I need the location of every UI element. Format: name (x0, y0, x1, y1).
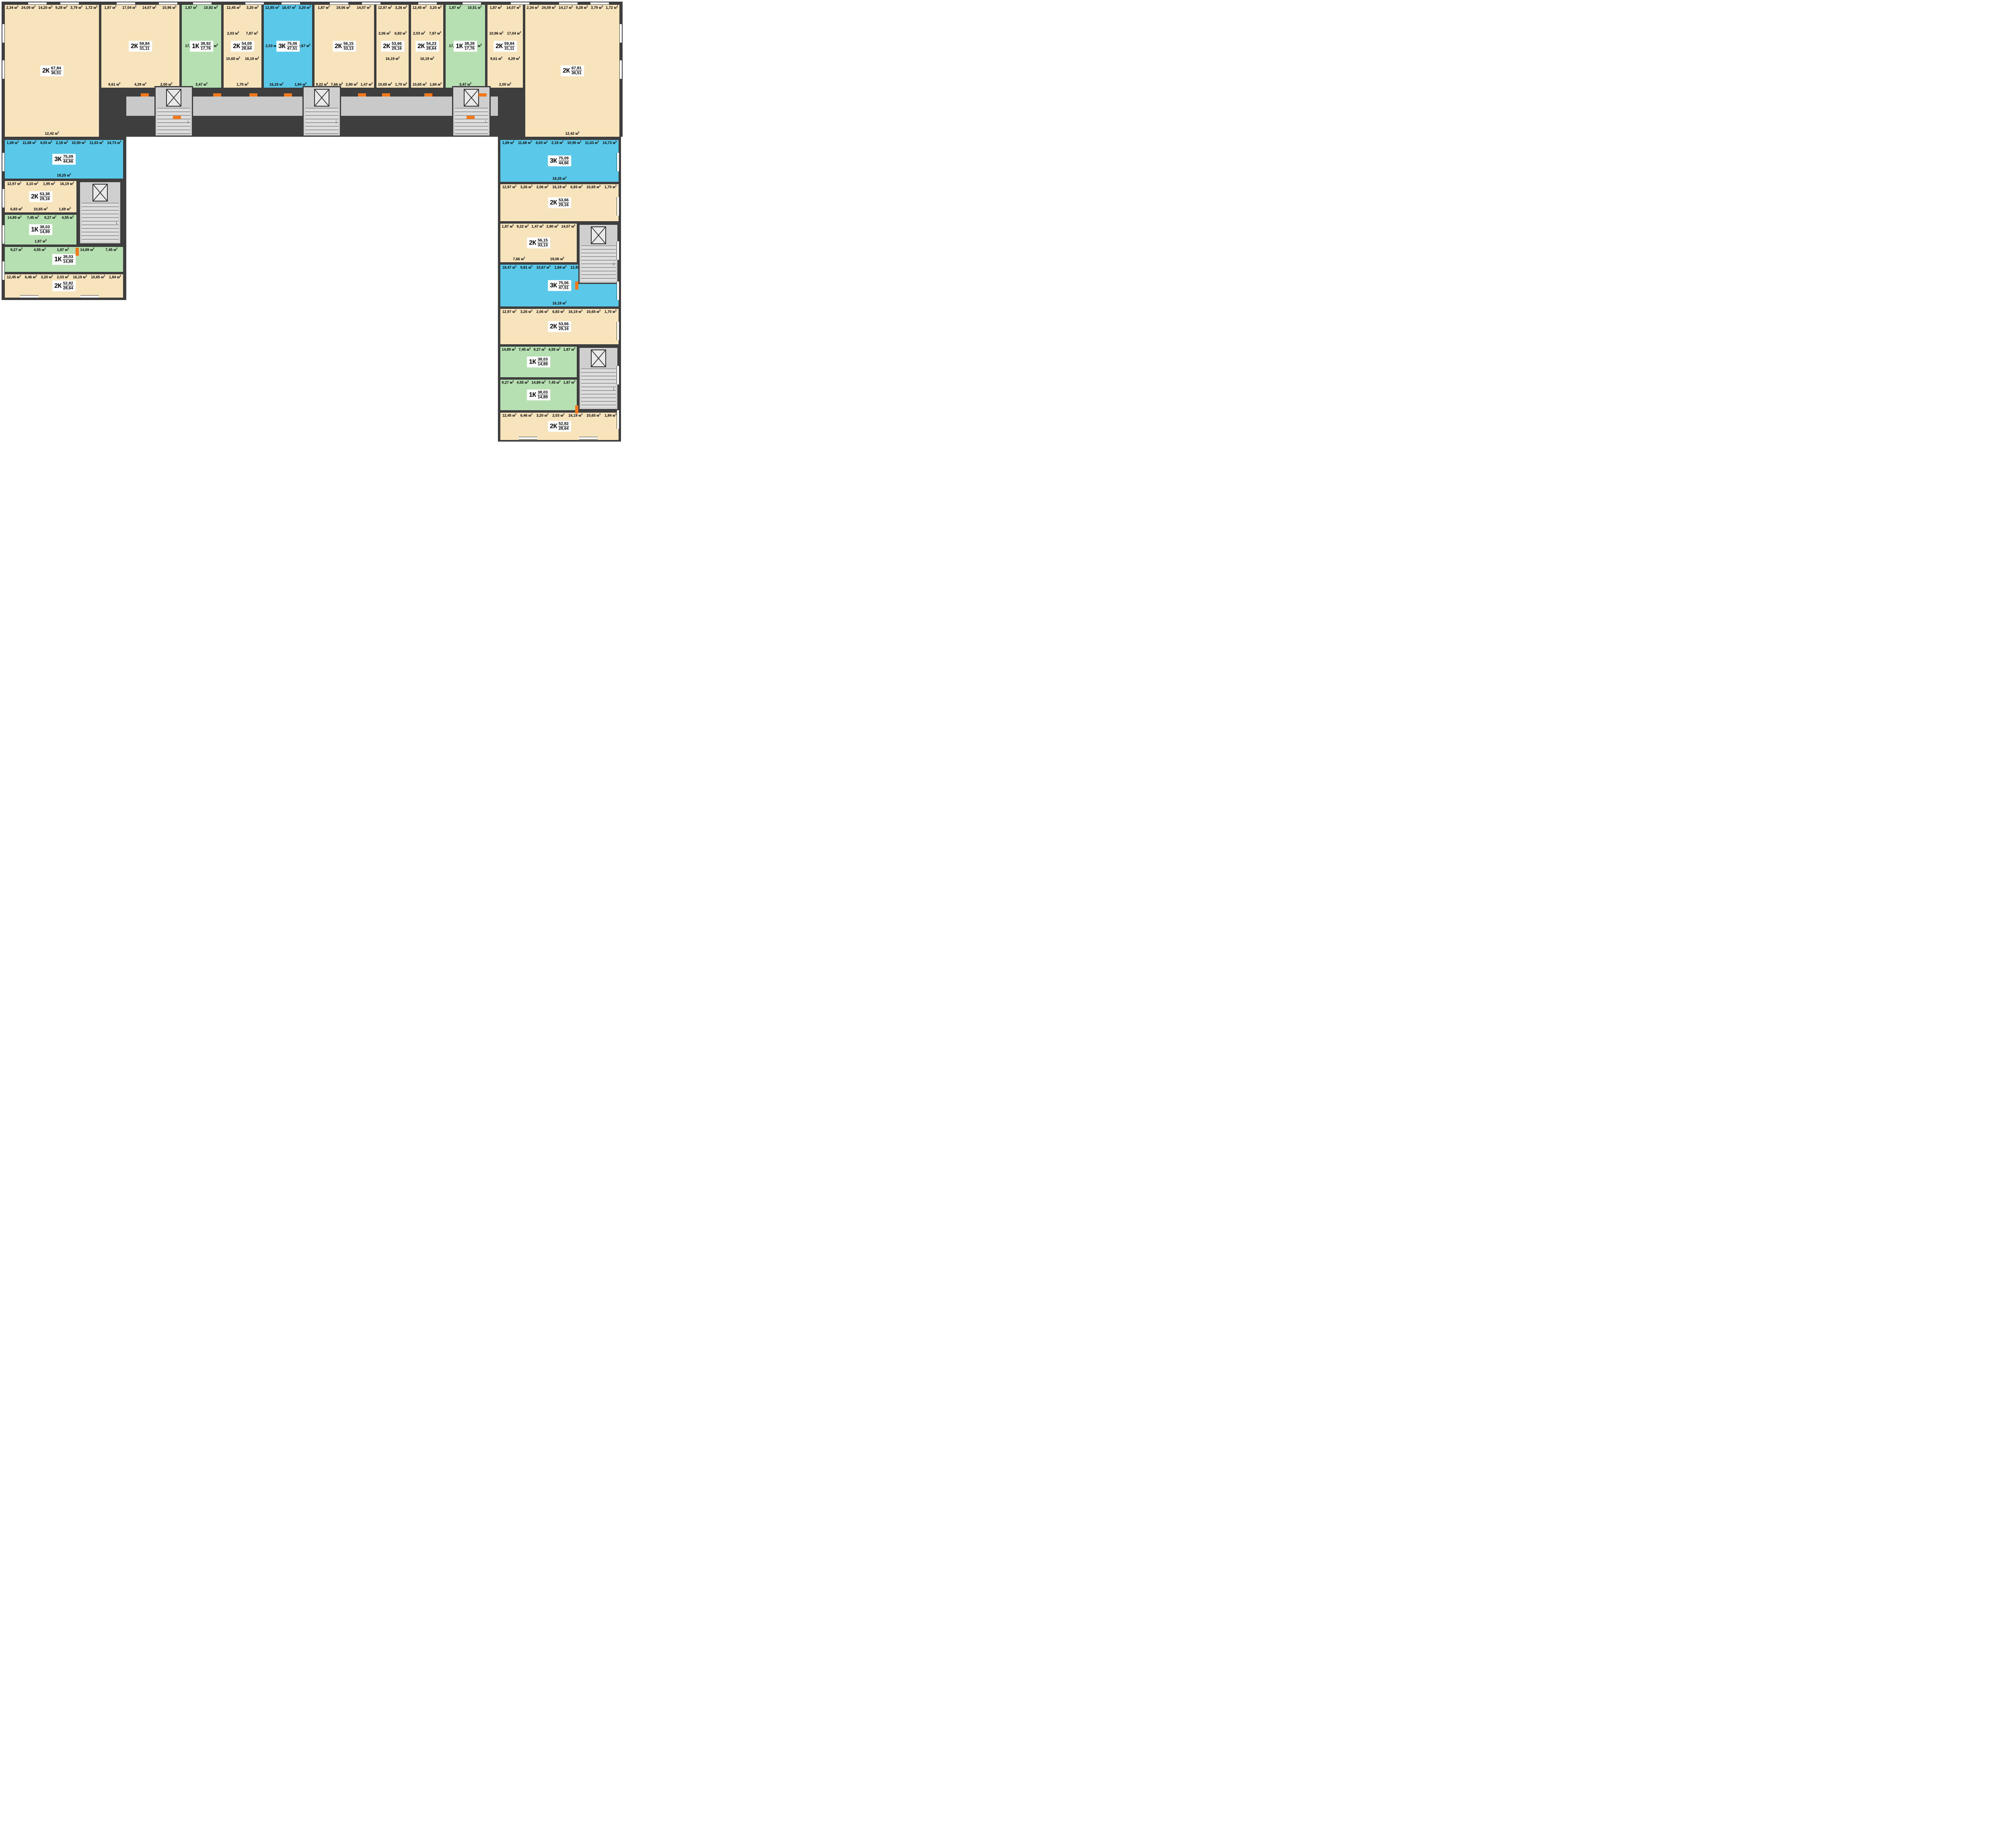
window-marker (590, 2, 609, 5)
bathroom-area-label: 3,20 м2 (247, 6, 259, 10)
entrance-door-marker (173, 116, 181, 119)
hallway-area-label: 7,45 м2 (548, 380, 560, 385)
apartment-total-area: 67,84 (51, 66, 62, 71)
living-room-area-label: 16,19 м2 (552, 185, 566, 189)
apartment-total-area: 53,66 (558, 322, 569, 327)
wc-area-label: 2,18 м2 (56, 141, 68, 145)
apartment-badge: 3К75,0944,66 (52, 154, 76, 165)
apartment-badge: 2К53,3829,16 (29, 191, 52, 202)
apartment-block-right-3[interactable]: 1,87 м29,22 м21,47 м22,80 м214,07 м27,66… (500, 224, 577, 262)
bathroom-area-label: 4,55 м2 (62, 216, 74, 220)
elevator-icon (93, 184, 108, 201)
bathroom-area-label: 4,55 м2 (34, 248, 46, 252)
hallway-area-label: 6,46 м2 (520, 413, 533, 418)
window-marker (519, 437, 537, 440)
hallway-area-label: 11,63 м2 (585, 141, 599, 145)
apartment-living-area: 14,89 (538, 362, 548, 367)
stair-core: ↓ (578, 224, 619, 284)
window-marker (617, 197, 619, 216)
stairs-direction-arrow-icon: ↓ (187, 118, 189, 124)
apartment-block-top-11[interactable]: 2,34 м224,09 м214,17 м29,28 м23,79 м21,7… (525, 5, 619, 137)
stairs-icon: ↓ (455, 108, 488, 134)
window-marker (159, 2, 177, 5)
bathroom-area-label: 2,80 м2 (546, 224, 558, 229)
apartment-total-area: 59,84 (504, 42, 515, 47)
wc-area-label: 2,03 м2 (57, 275, 69, 280)
living-room-area-label: 17,04 м2 (507, 31, 521, 36)
apartment-badge: 3К75,0647,51 (276, 41, 300, 52)
kitchen-area-label: 10,65 м2 (586, 185, 600, 189)
balcony-area-label: 2,34 м2 (6, 6, 19, 10)
living-room-area-label: 12,45 м2 (226, 6, 241, 10)
kitchen-area-label: 9,22 м2 (516, 224, 528, 229)
bathroom-area-label: 3,20 м2 (299, 6, 311, 10)
balcony-area-label: 1,70 м2 (605, 185, 617, 189)
kitchen-area-label: 10,51 м2 (468, 6, 482, 10)
apartment-living-area: 29,16 (559, 327, 569, 331)
window-marker (511, 2, 529, 5)
wc-area-label: 1,72 м2 (606, 6, 618, 10)
apartment-type: 2К (131, 43, 138, 50)
wc-area-label: 2,00 м2 (499, 82, 511, 87)
living-room-area-label: 11,68 м2 (518, 141, 532, 145)
apartment-block-left-1[interactable]: 1,69 м211,68 м24,03 м22,18 м210,90 м211,… (5, 140, 123, 179)
apartment-total-area: 38,28 (464, 42, 475, 47)
apartment-type: 2К (529, 239, 536, 247)
wc-area-label: 1,47 м2 (360, 82, 372, 87)
living-room-area-label: 12,45 м2 (502, 413, 516, 418)
wc-area-label: 2,03 м2 (552, 413, 564, 418)
apartment-total-area: 56,15 (343, 42, 354, 47)
apartment-type: 2К (31, 193, 38, 200)
bathroom-area-label: 4,03 м2 (40, 141, 52, 145)
balcony-area-label: 1,69 м2 (7, 141, 19, 145)
balcony-area-label: 1,84 м2 (554, 265, 566, 270)
balcony-area-label: 1,87 м2 (57, 248, 69, 252)
apartment-type: 3К (278, 43, 286, 50)
balcony-area-label: 1,70 м2 (605, 310, 617, 314)
bathroom-area-label: 3,79 м2 (70, 6, 82, 10)
living-room-area-label: 14,89 м2 (80, 248, 94, 252)
apartment-living-area: 33,13 (343, 47, 354, 51)
stair-core: ↓ (154, 86, 193, 137)
living-room-area-label: 16,19 м2 (245, 57, 259, 61)
window-marker (617, 366, 619, 384)
apartment-living-area: 17,76 (201, 47, 211, 51)
apartment-living-area: 28,64 (559, 427, 569, 431)
wc-area-label: 2,03 м2 (413, 31, 425, 36)
bathroom-area-label: 4,03 м2 (536, 141, 548, 145)
window-marker (2, 24, 5, 43)
apartment-living-area: 44,66 (63, 160, 73, 164)
window-marker (193, 2, 212, 5)
window-marker (617, 282, 619, 300)
hallway-area-label: 3,47 м2 (195, 82, 208, 87)
living-room-area-label: 14,07 м2 (357, 6, 371, 10)
apartment-badge: 2К59,8431,11 (493, 41, 517, 52)
apartment-living-area: 44,66 (559, 161, 569, 166)
kitchen-area-label: 9,27 м2 (502, 380, 514, 385)
stair-core: ↓ (79, 181, 121, 245)
elevator-icon (464, 89, 479, 107)
window-marker (28, 2, 47, 5)
wc-area-label: 2,06 м2 (537, 310, 549, 314)
apartment-type: 1К (31, 226, 38, 233)
living-room-area-label: 24,09 м2 (21, 6, 35, 10)
apartment-badge: 3К75,0647,51 (548, 280, 571, 291)
apartment-badge: 1К38,0314,89 (52, 254, 76, 265)
balcony-area-label: 1,84 м2 (430, 82, 442, 87)
entrance-door-marker (479, 93, 487, 97)
living-room-area-label: 16,19 м2 (269, 82, 284, 87)
balcony-area-label: 1,84 м2 (109, 275, 121, 280)
kitchen-area-label: 14,20 м2 (38, 6, 52, 10)
entrance-door-marker (213, 93, 221, 97)
entrance-door-marker (575, 282, 578, 290)
hallway-area-label: 7,45 м2 (518, 347, 531, 352)
apartment-living-area: 14,89 (538, 395, 548, 400)
apartment-living-area: 31,11 (504, 47, 514, 51)
apartment-block-right-2[interactable]: 12,97 м23,26 м22,06 м216,19 м26,83 м210,… (500, 184, 619, 221)
balcony-area-label: 1,87 м2 (449, 6, 461, 10)
bathroom-area-label: 3,20 м2 (537, 413, 549, 418)
apartment-block-left-3[interactable]: 14,89 м27,45 м29,27 м24,55 м21,87 м21К38… (5, 215, 76, 245)
hallway-area-label: 7,87 м2 (246, 31, 258, 36)
hallway-area-label: 9,81 м2 (520, 265, 533, 270)
kitchen-area-label: 10,96 м2 (162, 6, 177, 10)
stairs-icon: ↓ (157, 108, 190, 134)
apartment-living-area: 28,64 (426, 47, 436, 51)
apartment-total-area: 53,66 (391, 42, 402, 47)
bathroom-area-label: 3,26 м2 (520, 310, 533, 314)
apartment-total-area: 52,82 (558, 422, 569, 427)
wc-area-label: 2,06 м2 (537, 185, 549, 189)
apartment-living-area: 36,51 (572, 71, 582, 76)
living-room-area-label: 12,45 м2 (413, 6, 427, 10)
apartment-type: 3К (550, 282, 557, 289)
apartment-living-area: 14,89 (40, 230, 50, 234)
living-room-area-label: 14,07 м2 (142, 6, 156, 10)
bathroom-area-label: 3,20 м2 (41, 275, 53, 280)
apartment-badge: 1К38,9217,76 (190, 41, 213, 52)
apartment-total-area: 54,23 (426, 42, 437, 47)
apartment-type: 1К (192, 43, 199, 50)
stair-core: ↓ (302, 86, 341, 137)
apartment-total-area: 75,09 (63, 155, 74, 160)
balcony-area-label: 1,70 м2 (236, 82, 249, 87)
elevator-icon (314, 89, 329, 107)
window-marker (117, 2, 135, 5)
living-room-area-label: 12,42 м2 (565, 132, 579, 136)
window-marker (617, 153, 619, 171)
window-marker (617, 410, 619, 429)
bathroom-area-label: 4,29 м2 (508, 57, 520, 61)
living-room-area-label: 16,19 м2 (568, 413, 582, 418)
entrance-door-marker (575, 405, 578, 413)
living-room-area-label: 12,97 м2 (502, 185, 516, 189)
living-room-area-label: 16,19 м2 (385, 57, 399, 61)
balcony-area-label: 1,87 м2 (104, 6, 116, 10)
apartment-total-area: 38,03 (537, 391, 548, 395)
living-room-area-label: 12,45 м2 (7, 275, 21, 280)
apartment-total-area: 53,66 (558, 198, 569, 203)
hallway-area-label: 9,28 м2 (576, 6, 588, 10)
entrance-door-marker (249, 93, 257, 97)
balcony-area-label: 1,69 м2 (59, 207, 71, 212)
apartment-type: 2К (550, 199, 557, 206)
kitchen-area-label: 14,17 м2 (559, 6, 573, 10)
apartment-living-area: 14,89 (63, 260, 73, 264)
kitchen-area-label: 10,67 м2 (537, 265, 551, 270)
apartment-badge: 2К53,6629,16 (548, 321, 571, 332)
window-marker (579, 437, 598, 440)
window-marker (617, 322, 619, 340)
kitchen-area-label: 9,27 м2 (533, 347, 545, 352)
entrance-door-marker (76, 248, 79, 256)
apartment-badge: 2К56,1533,13 (333, 41, 356, 52)
apartment-block-left-4[interactable]: 9,27 м24,55 м21,87 м214,89 м27,45 м21К38… (5, 247, 123, 272)
wc-area-label: 1,47 м2 (531, 224, 543, 229)
apartment-badge: 2К54,0928,64 (231, 41, 254, 52)
balcony-area-label: 1,87 м2 (318, 6, 330, 10)
apartment-block-top-7[interactable]: 12,97 м23,26 м22,06 м26,83 м216,19 м210,… (376, 5, 409, 88)
apartment-type: 2К (550, 323, 557, 330)
bathroom-area-label: 4,29 м2 (134, 82, 146, 87)
apartment-living-area: 28,64 (242, 47, 252, 51)
apartment-total-area: 38,03 (537, 358, 548, 362)
apartment-block-top-5[interactable]: 12,85 м218,47 м23,20 м22,03 м29,81 м210,… (264, 5, 312, 88)
apartment-type: 1К (54, 256, 62, 263)
apartment-badge: 2К53,6629,16 (548, 197, 571, 208)
apartment-total-area: 38,03 (63, 255, 74, 260)
balcony-area-label: 1,87 м2 (502, 224, 514, 229)
hallway-area-label: 7,45 м2 (105, 248, 117, 252)
stairs-direction-arrow-icon: ↓ (115, 220, 118, 225)
stair-core: ↓ (578, 347, 619, 410)
bathroom-area-label: 3,20 м2 (430, 6, 442, 10)
window-marker (245, 2, 264, 5)
living-room-area-label: 12,97 м2 (7, 182, 21, 186)
apartment-block-top-6[interactable]: 1,87 м219,06 м214,07 м29,22 м27,66 м22,8… (315, 5, 374, 88)
apartment-type: 1К (456, 43, 463, 50)
wc-area-label: 2,03 м2 (227, 31, 239, 36)
living-room-area-label: 16,19 м2 (552, 301, 566, 306)
apartment-type: 2К (550, 423, 557, 430)
stairs-icon: ↓ (82, 203, 119, 242)
living-room-area-label: 18,47 м2 (502, 265, 516, 270)
apartment-block-left-2[interactable]: 12,97 м23,10 м21,95 м216,19 м26,83 м210,… (5, 181, 76, 212)
apartment-block-top-10[interactable]: 1,87 м214,07 м210,96 м217,04 м29,61 м24,… (487, 5, 523, 88)
living-room-area-label: 19,06 м2 (550, 257, 564, 261)
bathroom-area-label: 3,26 м2 (395, 6, 407, 10)
apartment-type: 2К (54, 282, 62, 290)
apartment-badge: 1К38,0314,89 (29, 224, 52, 235)
bathroom-area-label: 3,10 м2 (26, 182, 38, 186)
living-room-area-label: 19,06 м2 (336, 6, 350, 10)
apartment-block-top-9[interactable]: 1,87 м210,51 м217,76 м24,67 м23,47 м21К3… (446, 5, 485, 88)
hallway-area-label: 9,61 м2 (108, 82, 120, 87)
apartment-type: 3К (550, 157, 557, 164)
bathroom-area-label: 3,79 м2 (591, 6, 603, 10)
apartment-block-right-8[interactable]: 12,45 м26,46 м23,20 м22,03 м216,19 м210,… (500, 413, 619, 440)
living-room-area-label: 12,97 м2 (378, 6, 392, 10)
bathroom-area-label: 3,26 м2 (520, 185, 533, 189)
living-room-area-label: 16,19 м2 (73, 275, 87, 280)
apartment-type: 1К (529, 391, 536, 399)
balcony-area-label: 1,87 м2 (490, 6, 502, 10)
kitchen-area-label: 10,90 м2 (567, 141, 581, 145)
kitchen-area-label: 10,65 м2 (586, 413, 600, 418)
apartment-type: 2К (417, 43, 425, 50)
apartment-badge: 2К59,8431,11 (129, 41, 152, 52)
apartment-badge: 2К54,2328,64 (415, 41, 439, 52)
living-room-area-label: 12,97 м2 (502, 310, 516, 314)
apartment-living-area: 47,51 (287, 47, 297, 51)
living-room-area-label: 18,47 м2 (282, 6, 296, 10)
apartment-block-top-2[interactable]: 1,87 м217,04 м214,07 м210,96 м29,61 м24,… (101, 5, 179, 88)
apartment-type: 2К (335, 43, 342, 50)
kitchen-area-label: 10,65 м2 (413, 82, 427, 87)
living-room-area-label: 14,73 м2 (602, 141, 617, 145)
stairs-direction-arrow-icon: ↓ (335, 118, 337, 124)
apartment-badge: 1К38,2817,76 (454, 41, 477, 52)
living-room-area-label: 12,85 м2 (265, 6, 279, 10)
balcony-area-label: 1,70 м2 (395, 82, 407, 87)
apartment-living-area: 29,16 (559, 203, 569, 208)
kitchen-area-label: 10,65 м2 (91, 275, 105, 280)
kitchen-area-label: 10,65 м2 (226, 57, 240, 61)
balcony-area-label: 1,87 м2 (563, 380, 575, 385)
apartment-total-area: 75,06 (558, 281, 569, 286)
stairs-direction-arrow-icon: ↓ (485, 118, 487, 124)
apartment-type: 2К (563, 67, 570, 74)
apartment-badge: 2К52,8228,64 (52, 281, 76, 292)
living-room-area-label: 14,07 м2 (506, 6, 520, 10)
apartment-badge: 2К67,8436,51 (40, 66, 64, 76)
stairs-icon: ↓ (581, 245, 616, 281)
apartment-badge: 3К75,0944,66 (548, 156, 571, 167)
apartment-block-top-1[interactable]: 2,34 м224,09 м214,20 м29,28 м23,79 м21,7… (5, 5, 99, 137)
window-marker (463, 2, 481, 5)
apartment-badge: 1К38,0314,89 (527, 390, 550, 401)
window-marker (2, 261, 5, 280)
apartment-total-area: 54,09 (241, 42, 252, 47)
hallway-area-label: 9,61 м2 (490, 57, 502, 61)
entrance-door-marker (424, 93, 432, 97)
apartment-living-area: 29,16 (40, 197, 50, 201)
living-room-area-label: 14,89 м2 (8, 216, 22, 220)
kitchen-area-label: 10,65 м2 (33, 207, 47, 212)
apartment-block-right-1[interactable]: 1,69 м211,68 м24,03 м22,18 м210,90 м211,… (500, 140, 619, 182)
hallway-area-label: 9,28 м2 (56, 6, 68, 10)
window-marker (619, 60, 622, 79)
kitchen-area-label: 10,92 м2 (204, 6, 218, 10)
apartment-type: 2К (42, 67, 49, 74)
living-room-area-label: 11,68 м2 (23, 141, 37, 145)
apartment-badge: 2К56,1533,13 (527, 238, 550, 249)
entrance-door-marker (141, 93, 149, 97)
window-marker (2, 189, 5, 208)
kitchen-area-label: 9,27 м2 (44, 216, 56, 220)
wc-area-label: 1,95 м2 (43, 182, 55, 186)
apartment-block-top-4[interactable]: 12,45 м23,20 м22,03 м27,87 м210,65 м216,… (224, 5, 261, 88)
hallway-area-label: 6,83 м2 (10, 207, 23, 212)
hallway-area-label: 7,45 м2 (27, 216, 39, 220)
wc-area-label: 2,18 м2 (551, 141, 563, 145)
wc-area-label: 2,03 м2 (265, 44, 278, 48)
living-room-area-label: 14,89 м2 (531, 380, 545, 385)
apartment-block-top-8[interactable]: 12,45 м23,20 м22,03 м27,87 м216,19 м210,… (411, 5, 443, 88)
window-marker (80, 295, 99, 298)
living-room-area-label: 14,89 м2 (502, 347, 516, 352)
elevator-icon (591, 226, 606, 244)
apartment-total-area: 75,06 (287, 42, 298, 47)
apartment-total-area: 67,81 (571, 66, 582, 71)
kitchen-area-label: 10,65 м2 (378, 82, 392, 87)
living-room-area-label: 16,19 м2 (568, 310, 582, 314)
hallway-area-label: 11,63 м2 (90, 141, 104, 145)
balcony-area-label: 1,87 м2 (563, 347, 575, 352)
apartment-block-left-5[interactable]: 12,45 м26,46 м23,20 м22,03 м216,19 м210,… (5, 274, 123, 298)
stairs-icon: ↓ (305, 108, 338, 134)
bathroom-area-label: 4,55 м2 (516, 380, 528, 385)
apartment-block-right-6[interactable]: 14,89 м27,45 м29,27 м24,55 м21,87 м21К38… (500, 347, 577, 377)
entrance-door-marker (284, 93, 292, 97)
hallway-area-label: 6,83 м2 (552, 310, 564, 314)
window-marker (60, 2, 79, 5)
apartment-block-right-7[interactable]: 9,27 м24,55 м214,89 м27,45 м21,87 м21К38… (500, 380, 577, 410)
apartment-badge: 2К53,6629,16 (381, 41, 404, 52)
living-room-area-label: 14,73 м2 (107, 141, 121, 145)
kitchen-area-label: 9,27 м2 (10, 248, 23, 252)
living-room-area-label: 16,19 м2 (420, 57, 434, 61)
apartment-living-area: 33,13 (538, 243, 548, 248)
hallway-area-label: 7,87 м2 (429, 31, 441, 36)
balcony-area-label: 1,69 м2 (502, 141, 514, 145)
kitchen-area-label: 10,65 м2 (586, 310, 600, 314)
apartment-block-right-5[interactable]: 12,97 м23,26 м22,06 м26,83 м216,19 м210,… (500, 309, 619, 344)
hallway-area-label: 6,83 м2 (395, 31, 407, 36)
floor-plan-canvas: 2,34 м224,09 м214,20 м29,28 м23,79 м21,7… (0, 0, 624, 443)
bathroom-area-label: 2,80 м2 (345, 82, 358, 87)
apartment-living-area: 36,51 (51, 71, 61, 76)
hallway-area-label: 6,83 м2 (570, 185, 582, 189)
apartment-block-top-3[interactable]: 1,87 м210,92 м217,76 м24,90 м23,47 м21К3… (182, 5, 221, 88)
living-room-area-label: 14,07 м2 (561, 224, 575, 229)
apartment-type: 2К (233, 43, 240, 50)
balcony-area-label: 1,84 м2 (605, 413, 617, 418)
apartment-type: 3К (54, 156, 62, 163)
living-room-area-label: 12,42 м2 (45, 132, 59, 136)
apartment-type: 1К (529, 358, 536, 366)
window-marker (2, 225, 5, 244)
kitchen-area-label: 10,90 м2 (72, 141, 86, 145)
living-room-area-label: 24,09 м2 (542, 6, 556, 10)
window-marker (2, 60, 5, 79)
apartment-total-area: 56,15 (537, 238, 548, 243)
hallway-area-label: 7,66 м2 (513, 257, 525, 261)
apartment-type: 2К (383, 43, 390, 50)
apartment-total-area: 53,38 (39, 192, 50, 197)
apartment-total-area: 38,03 (39, 225, 50, 230)
stairs-direction-arrow-icon: ↓ (613, 261, 615, 266)
elevator-icon (591, 349, 606, 367)
apartment-total-area: 38,92 (200, 42, 211, 47)
apartment-total-area: 52,82 (63, 282, 74, 286)
window-marker (330, 2, 348, 5)
apartment-badge: 1К38,0314,89 (527, 357, 550, 368)
apartment-living-area: 29,16 (392, 47, 402, 51)
